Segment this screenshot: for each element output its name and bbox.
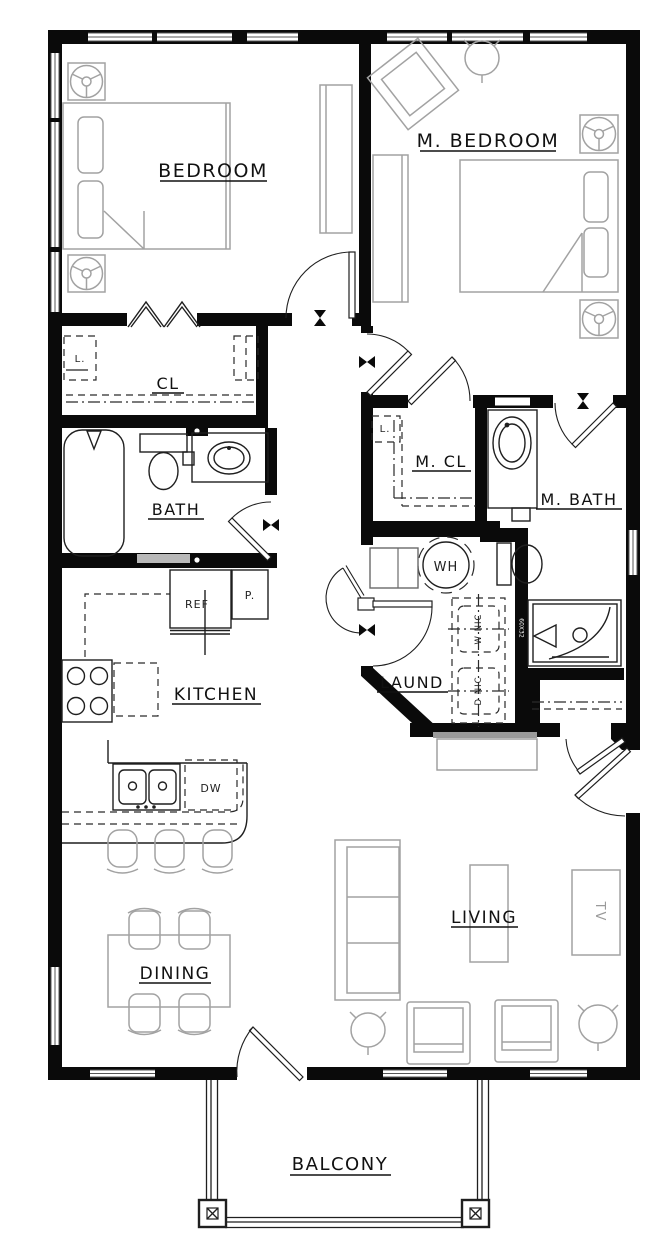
bath-door: [229, 502, 272, 561]
kitchen-sink: [113, 764, 180, 810]
entry-console: [433, 732, 537, 770]
master-closet-door: [408, 357, 470, 405]
living-side-table: [350, 1012, 386, 1055]
window-top-5: [452, 33, 523, 42]
bathtub: [64, 430, 124, 556]
entry-doors: [566, 738, 630, 816]
refrigerator-label: REF: [185, 598, 209, 611]
shower: [528, 600, 621, 666]
window-left-3: [51, 252, 60, 312]
living-armchair: [495, 1000, 558, 1062]
linen-label: L.: [380, 424, 391, 435]
master-dresser: [373, 155, 408, 302]
door-stop-icons: [263, 310, 589, 636]
sofa: [335, 840, 400, 1000]
window-bottom-1: [90, 1070, 155, 1078]
tv-label: TV: [592, 901, 607, 923]
pantry-label: P.: [245, 589, 255, 602]
master-vanity-sink: [488, 410, 537, 521]
window-left-2: [51, 122, 60, 247]
labels-layer: BEDROOM M. BEDROOM CL BATH M. CL M. BATH…: [75, 130, 622, 1175]
balcony-post-icon: [199, 1200, 226, 1227]
living-label: LIVING: [451, 908, 517, 928]
bath-toilet: [140, 434, 187, 490]
water-heater-label: WH: [434, 560, 459, 575]
bedroom-label: BEDROOM: [158, 160, 268, 182]
master-closet-label: M. CL: [415, 452, 467, 471]
laundry-label: LAUND: [380, 673, 444, 692]
dryer-label: D NIC: [474, 676, 484, 705]
bedroom-door: [286, 252, 355, 318]
floor-plan-drawing: BEDROOM M. BEDROOM CL BATH M. CL M. BATH…: [0, 0, 650, 1244]
dining-label: DINING: [140, 964, 211, 984]
bedroom-dresser: [320, 85, 352, 233]
window-top-4: [387, 33, 447, 42]
window-bottom-3: [530, 1070, 587, 1078]
closet-label: CL: [156, 374, 179, 393]
refrigerator: [170, 570, 231, 655]
living-side-table: [578, 1005, 618, 1051]
master-side-table: [464, 40, 500, 83]
kitchen-label: KITCHEN: [174, 685, 258, 705]
balcony-label: BALCONY: [292, 1154, 388, 1175]
washer-label: W NIC: [474, 614, 484, 645]
laundry-cabinet: [370, 548, 418, 588]
master-armchair: [367, 38, 458, 129]
ceiling-fan-icon: [68, 63, 105, 100]
window-top-1: [88, 33, 152, 42]
ceiling-fan-icon: [68, 255, 105, 292]
master-bedroom-label: M. BEDROOM: [417, 130, 560, 152]
window-right-1: [629, 530, 638, 575]
bath-vanity-sink: [183, 433, 268, 482]
laundry-door: [373, 601, 432, 666]
window-left-4: [51, 967, 60, 1045]
window-top-2: [157, 33, 232, 42]
balcony-post-icon: [462, 1200, 489, 1227]
master-bed: [460, 160, 618, 292]
closet-dashes-layer: [62, 336, 622, 824]
furniture-layer: [63, 38, 620, 1064]
living-armchair: [407, 1002, 470, 1064]
window-bottom-2: [383, 1070, 447, 1078]
master-bath-label: M. BATH: [541, 490, 618, 509]
ceiling-fan-icon: [580, 115, 618, 153]
stove: [62, 660, 112, 722]
linen-label: L.: [75, 354, 86, 365]
walls-layer: [48, 30, 640, 1080]
bath-label: BATH: [152, 500, 200, 519]
window-left-1: [51, 53, 60, 118]
window-top-3: [247, 33, 298, 42]
floor-plan-page: BEDROOM M. BEDROOM CL BATH M. CL M. BATH…: [0, 0, 650, 1244]
window-top-6: [530, 33, 587, 42]
ceiling-fan-icon: [580, 300, 618, 338]
closet-bifold-doors: [128, 302, 200, 327]
master-bath-door: [555, 403, 617, 448]
shower-size-tag: 60X32: [518, 618, 525, 638]
bar-stools: [107, 830, 233, 873]
dishwasher-label: DW: [200, 782, 221, 795]
